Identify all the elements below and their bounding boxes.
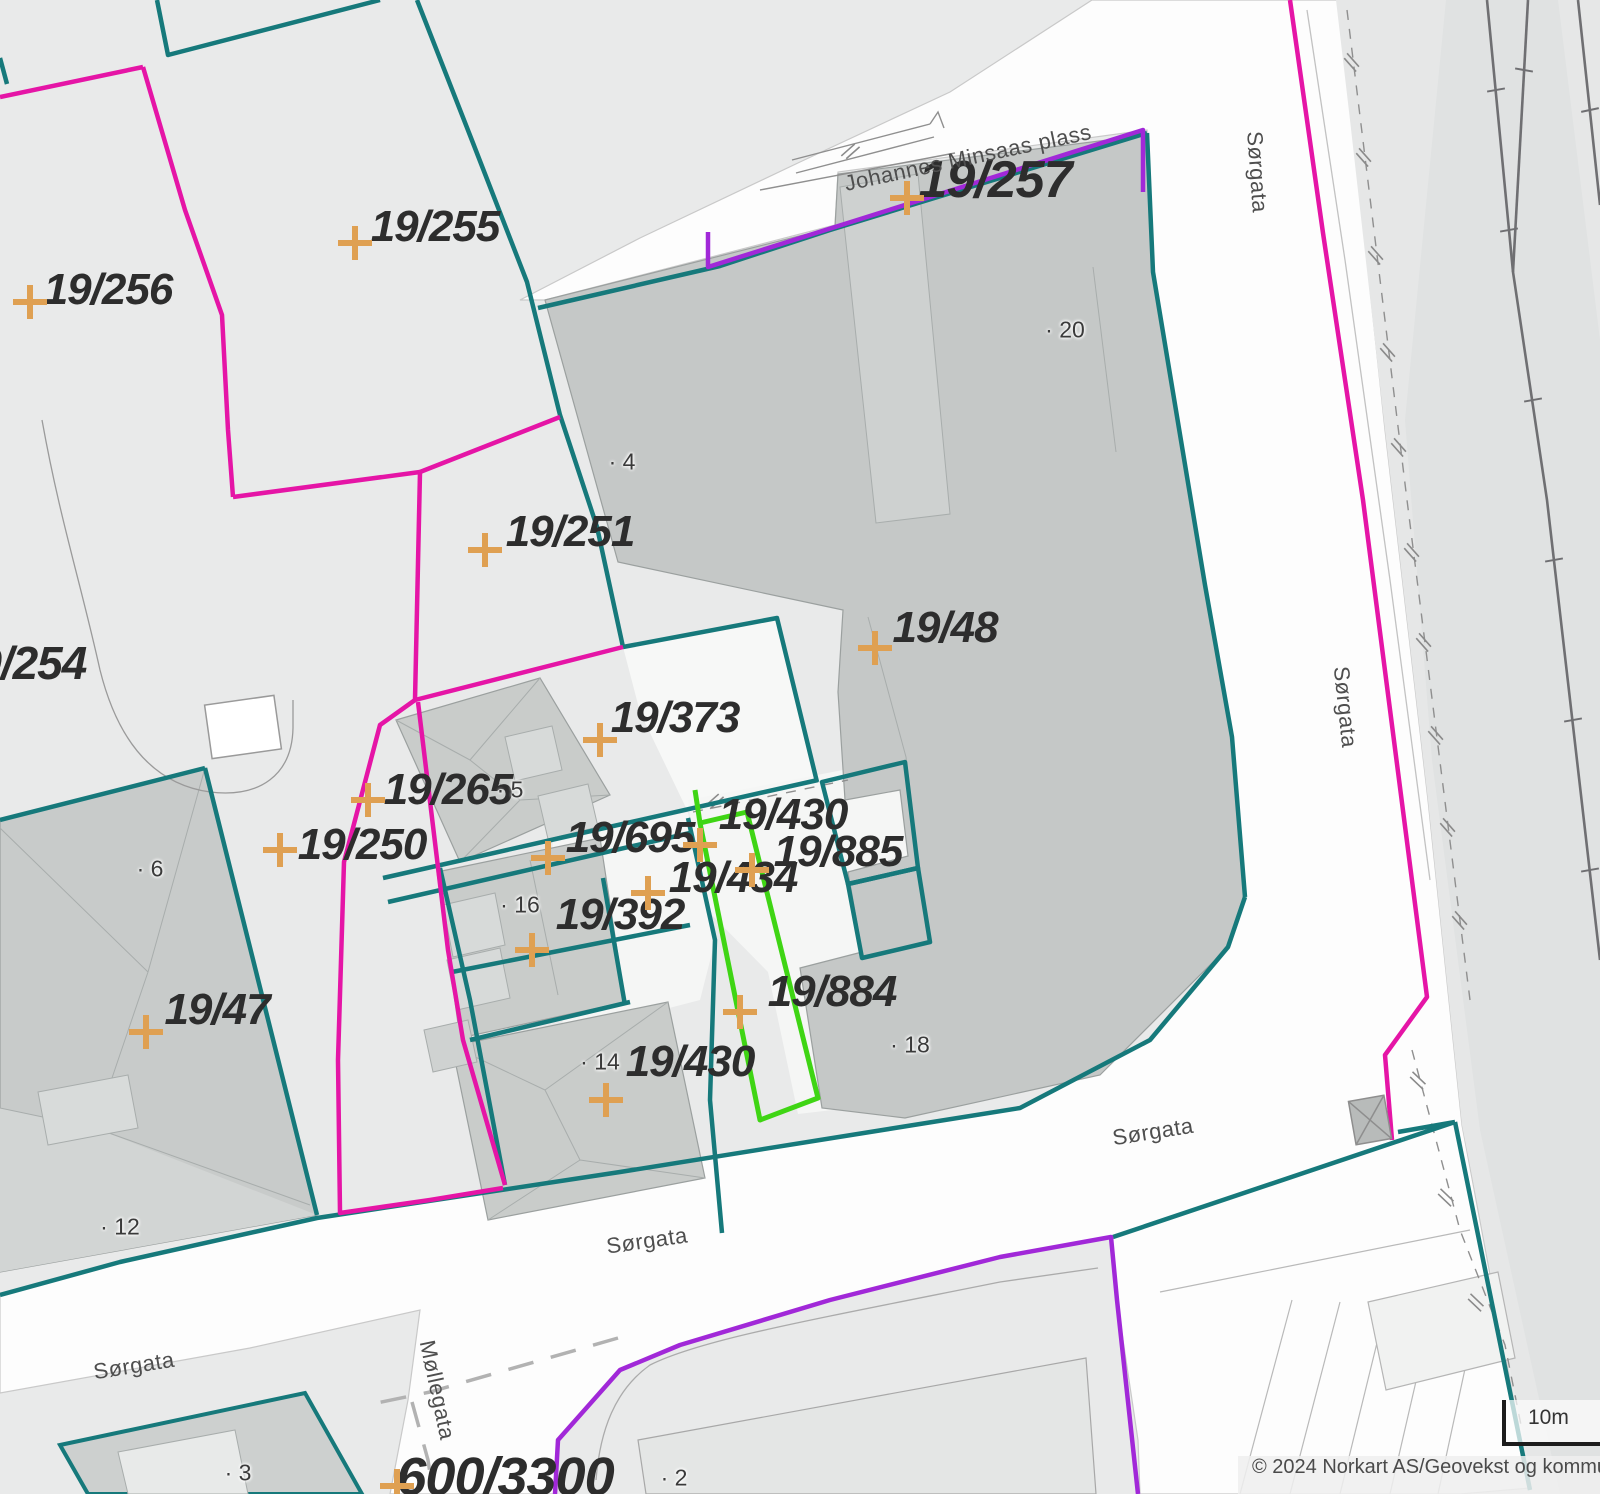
building-number: · 18 — [890, 1032, 930, 1059]
scale-label: 10m — [1528, 1406, 1600, 1430]
street-label: Møllegata — [414, 1338, 460, 1442]
building-number: · 2 — [661, 1465, 688, 1492]
survey-cross-icon — [735, 853, 769, 887]
street-label: Sørgata — [1328, 665, 1362, 749]
parcel-label: 19/392 — [556, 890, 685, 940]
survey-cross-icon — [723, 995, 757, 1029]
building-number: · 12 — [100, 1214, 140, 1241]
parcel-label: 19/265 — [384, 765, 513, 815]
street-label: Sørgata — [1111, 1113, 1196, 1151]
building-number: · 3 — [225, 1460, 252, 1487]
survey-cross-icon — [129, 1015, 163, 1049]
parcel-label: 19/884 — [768, 967, 897, 1017]
parcel-label: 19/255 — [371, 202, 500, 252]
street-label: Sørgata — [605, 1222, 690, 1259]
survey-cross-icon — [589, 1083, 623, 1117]
building-number: · 14 — [580, 1049, 620, 1076]
labels-layer: 19/25619/25519/25719/25119/25419/4819/37… — [0, 0, 1600, 1494]
parcel-label: 600/3300 — [396, 1446, 613, 1494]
building-number: · 20 — [1045, 317, 1085, 344]
building-number: · 5 — [497, 777, 524, 804]
building-number: · 16 — [500, 892, 540, 919]
survey-cross-icon — [515, 933, 549, 967]
building-number: · 4 — [609, 449, 636, 476]
building-number: · 6 — [137, 856, 164, 883]
survey-cross-icon — [683, 828, 717, 862]
parcel-label: 19/48 — [892, 603, 997, 653]
survey-cross-icon — [531, 841, 565, 875]
street-label: Sørgata — [92, 1347, 177, 1385]
survey-cross-icon — [468, 533, 502, 567]
parcel-label: 19/430 — [626, 1037, 755, 1087]
parcel-label: 19/254 — [0, 636, 86, 690]
survey-cross-icon — [380, 1469, 414, 1494]
parcel-label: 19/373 — [611, 693, 740, 743]
survey-cross-icon — [583, 723, 617, 757]
parcel-label: 19/47 — [164, 985, 269, 1035]
survey-cross-icon — [890, 181, 924, 215]
scale-bar: 10m — [1502, 1400, 1600, 1446]
copyright: © 2024 Norkart AS/Geovekst og kommunene — [1238, 1456, 1600, 1494]
parcel-label: 19/251 — [506, 507, 635, 557]
map-canvas[interactable]: 19/25619/25519/25719/25119/25419/4819/37… — [0, 0, 1600, 1494]
street-label: Sørgata — [1241, 130, 1273, 213]
survey-cross-icon — [263, 833, 297, 867]
parcel-label: 19/256 — [44, 265, 173, 315]
survey-cross-icon — [631, 876, 665, 910]
survey-cross-icon — [858, 631, 892, 665]
survey-cross-icon — [13, 285, 47, 319]
survey-cross-icon — [338, 226, 372, 260]
parcel-label: 19/250 — [298, 820, 427, 870]
survey-cross-icon — [351, 783, 385, 817]
